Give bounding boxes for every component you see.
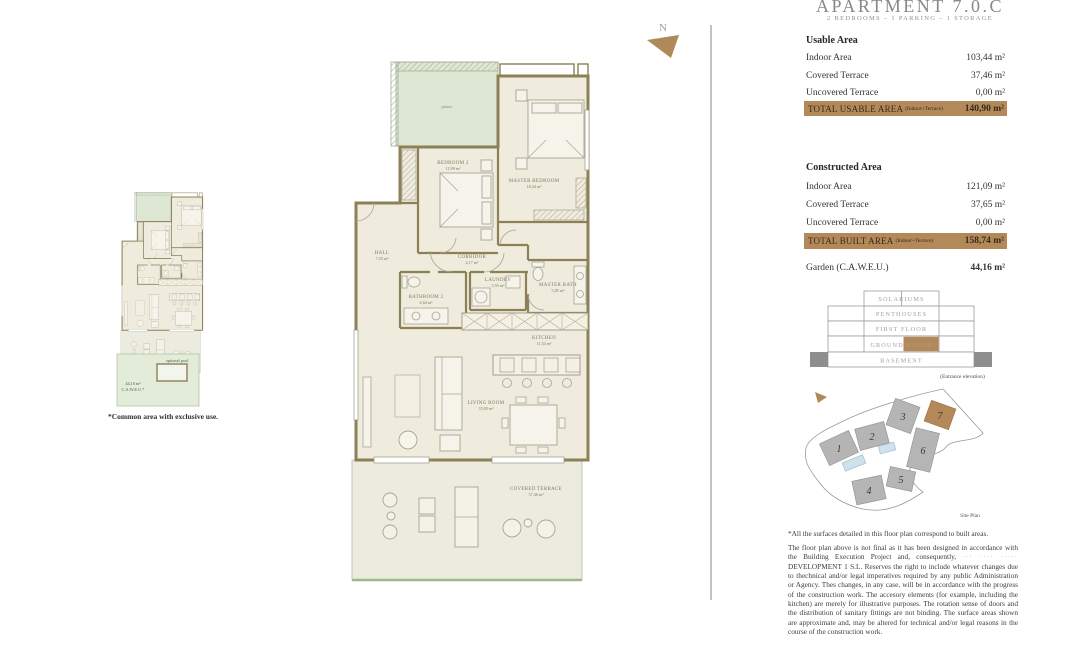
common-area-note: *Common area with exclusive use. — [108, 412, 238, 421]
usable-area-row: Covered Terrace 37,46 m² — [806, 71, 1005, 81]
disclaimer-note: *All the surfaces detailed in this floor… — [788, 529, 1018, 538]
constructed-area-row: Uncovered Terrace 0,00 m² — [806, 218, 1005, 228]
row-value: 37,46 m² — [971, 71, 1005, 81]
row-label: Uncovered Terrace — [806, 218, 878, 228]
north-label: N — [645, 22, 681, 34]
usable-area-heading: Usable Area — [806, 35, 1006, 46]
mini-overview-plan: optional pool 44,16 m² C.A.W.E.U.* — [93, 186, 235, 418]
floor-plan-page: plants BEDROOM 2 11,99 m² MASTER BEDROOM… — [0, 0, 1070, 650]
total-label: TOTAL USABLE AREA — [808, 104, 903, 114]
total-value: 140,90 m² — [965, 104, 1004, 114]
north-arrow-icon — [645, 34, 681, 62]
divider-line — [710, 25, 712, 600]
building-number: 5 — [899, 475, 904, 486]
level-label-solariums: SOLARIUMS — [878, 296, 924, 303]
building-number: 1 — [837, 444, 842, 455]
row-value: 0,00 m² — [976, 88, 1005, 98]
row-value: 121,09 m² — [966, 182, 1005, 192]
site-north-icon — [815, 392, 827, 403]
page-subtitle: 2 BEDROOMS – 1 PARKING – 1 STORAGE — [790, 15, 1030, 22]
building-number: 6 — [921, 446, 926, 457]
level-label-ground-floor: GROUND FLOOR — [870, 342, 932, 349]
total-built-area-bar: TOTAL BUILT AREA (Indoor+Terrace) 158,74… — [804, 233, 1007, 249]
constructed-area-row: Covered Terrace 37,65 m² — [806, 200, 1005, 210]
usable-area-row: Uncovered Terrace 0,00 m² — [806, 88, 1005, 98]
row-label: Covered Terrace — [806, 200, 869, 210]
optional-pool — [157, 364, 187, 381]
disclaimer-paragraph: The floor plan above is not final as it … — [788, 543, 1018, 636]
row-label: Indoor Area — [806, 53, 852, 63]
row-label: Uncovered Terrace — [806, 88, 878, 98]
north-arrow: N — [645, 22, 685, 82]
total-qualifier: (Indoor+Terrace) — [905, 106, 943, 112]
total-usable-area-bar: TOTAL USABLE AREA (Indoor+Terrace) 140,9… — [804, 101, 1007, 116]
main-floor-plan: plants BEDROOM 2 11,99 m² MASTER BEDROOM… — [350, 50, 600, 602]
site-plan-caption: Site Plan — [960, 513, 980, 519]
room-label-plants: plants — [442, 104, 453, 109]
level-label-basement: BASEMENT — [880, 358, 923, 365]
row-label: Covered Terrace — [806, 71, 869, 81]
row-label: Garden (C.A.W.E.U.) — [806, 263, 889, 273]
building-number: 3 — [900, 412, 906, 423]
row-value: 103,44 m² — [966, 53, 1005, 63]
level-label-penthouses: PENTHOUSES — [876, 311, 927, 318]
building-number: 2 — [870, 432, 875, 443]
mini-garden-note: C.A.W.E.U.* — [122, 387, 145, 392]
optional-pool-label: optional pool — [166, 358, 190, 363]
site-plan: 1 2 3 4 5 6 7 Site Plan — [795, 386, 1020, 522]
total-value: 158,74 m² — [965, 236, 1004, 246]
entrance-elevation-caption: (Entrance elevation) — [915, 374, 1010, 380]
constructed-area-heading: Constructed Area — [806, 162, 1006, 173]
garden-row: Garden (C.A.W.E.U.) 44,16 m² — [806, 263, 1005, 273]
row-value: 44,16 m² — [970, 263, 1005, 273]
disclaimer-text: DEVELOPMENT 1 S.L. Reserves the right to… — [788, 562, 1018, 636]
constructed-area-row: Indoor Area 121,09 m² — [806, 182, 1005, 192]
total-qualifier: (Indoor+Terrace) — [895, 238, 933, 244]
usable-area-row: Indoor Area 103,44 m² — [806, 53, 1005, 63]
total-label: TOTAL BUILT AREA — [808, 236, 893, 246]
row-value: 37,65 m² — [971, 200, 1005, 210]
redacted-text: ··· ···· ····· — [962, 552, 1018, 561]
building-number: 4 — [867, 486, 872, 497]
elevation-diagram: SOLARIUMS PENTHOUSES FIRST FLOOR GROUND … — [808, 288, 998, 372]
row-value: 0,00 m² — [976, 218, 1005, 228]
level-label-first-floor: FIRST FLOOR — [876, 326, 927, 333]
row-label: Indoor Area — [806, 182, 852, 192]
